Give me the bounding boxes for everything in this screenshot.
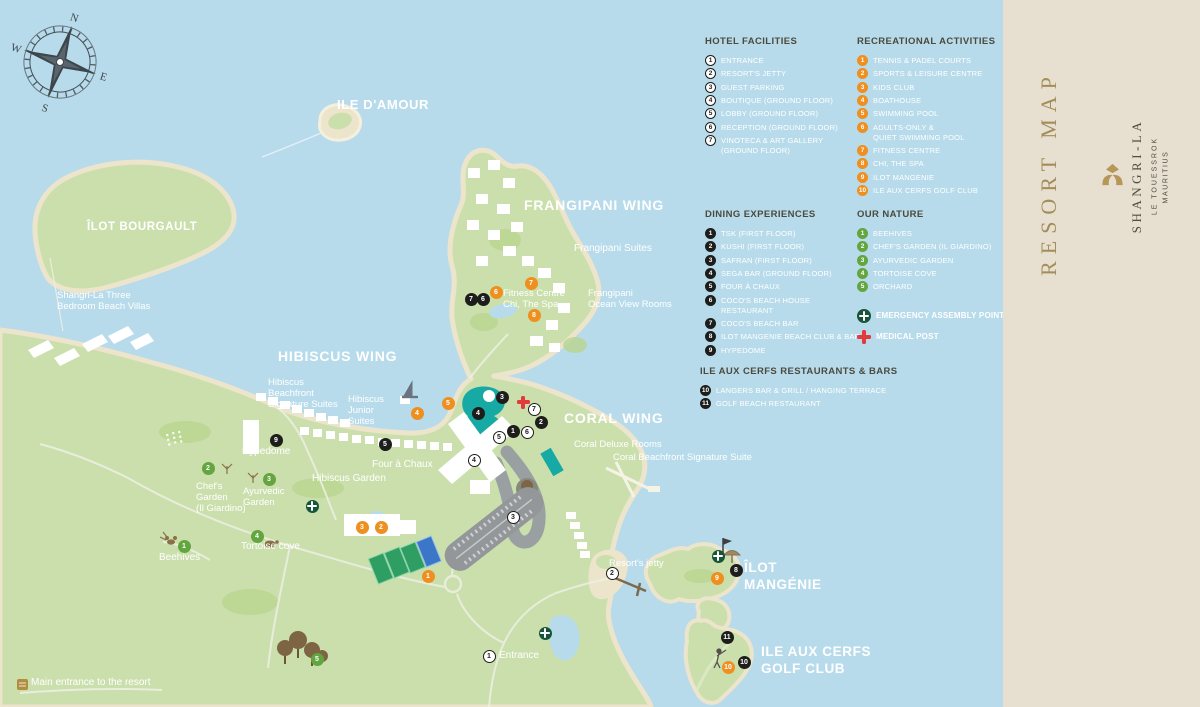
legend-item: 8ILOT MANGENIE BEACH CLUB & BAR (705, 331, 863, 342)
legend-item: 4TORTOISE COVE (857, 268, 1002, 279)
map-marker-r-2: 2 (375, 521, 388, 534)
legend-item: 5FOUR À CHAUX (705, 281, 863, 292)
legend-marker: 6 (705, 295, 716, 306)
legend-label: SPORTS & LEISURE CENTRE (873, 68, 983, 79)
legend-item: 10ILE AUX CERFS GOLF CLUB (857, 185, 1002, 196)
legend-marker: 3 (705, 255, 716, 266)
legend-item: 11GOLF BEACH RESTAURANT (700, 398, 960, 409)
legend-label: GOLF BEACH RESTAURANT (716, 398, 821, 409)
legend-label: ENTRANCE (721, 55, 764, 66)
legend-item: 3GUEST PARKING (705, 82, 855, 93)
legend-label: EMERGENCY ASSEMBLY POINT (876, 311, 1004, 322)
map-marker-m (517, 396, 530, 409)
legend-item-medical: MEDICAL POST (857, 330, 1007, 344)
legend-marker: 4 (857, 95, 868, 106)
legend-label: AYURVEDIC GARDEN (873, 255, 953, 266)
map-marker-r-8: 8 (528, 309, 541, 322)
map-marker-f-4: 4 (468, 454, 481, 467)
legend-label: SEGA BAR (GROUND FLOOR) (721, 268, 832, 279)
legend-item: 3KIDS CLUB (857, 82, 1002, 93)
legend-marker: 4 (705, 268, 716, 279)
map-marker-f-2: 2 (606, 567, 619, 580)
map-marker-f-6: 6 (521, 426, 534, 439)
legend-label: MEDICAL POST (876, 332, 939, 343)
legend-marker: 7 (857, 145, 868, 156)
legend-item: 1BEEHIVES (857, 228, 1002, 239)
map-marker-e (712, 550, 725, 563)
legend-item: 5ORCHARD (857, 281, 1002, 292)
legend-marker: 10 (700, 385, 711, 396)
legend-label: RESORT'S JETTY (721, 68, 786, 79)
map-marker-r-4: 4 (411, 407, 424, 420)
legend-label: FITNESS CENTRE (873, 145, 940, 156)
map-marker-r-5: 5 (442, 397, 455, 410)
map-marker-n-3: 3 (263, 473, 276, 486)
legend-label: ORCHARD (873, 281, 912, 292)
legend-title: HOTEL FACILITIES (705, 36, 855, 47)
legend-marker: 1 (705, 228, 716, 239)
resort-map-page: NESW ILE D'AMOURÎLOT BOURGAULTShangri-La… (0, 0, 1200, 707)
legend-marker: 5 (705, 281, 716, 292)
legend-label: SWIMMING POOL (873, 108, 939, 119)
legend-item: 2RESORT'S JETTY (705, 68, 855, 79)
legend-item: 5SWIMMING POOL (857, 108, 1002, 119)
medical-post-icon (857, 330, 871, 344)
map-marker-f-1: 1 (483, 650, 496, 663)
legend-marker: 6 (705, 122, 716, 133)
legend-marker: 9 (705, 345, 716, 356)
legend-item: 8CHI, THE SPA (857, 158, 1002, 169)
map-marker-e (539, 627, 552, 640)
legend-item: 2CHEF'S GARDEN (IL GIARDINO) (857, 241, 1002, 252)
legend-label: CHEF'S GARDEN (IL GIARDINO) (873, 241, 992, 252)
legend-marker: 2 (705, 68, 716, 79)
legend-label: CHI, THE SPA (873, 158, 924, 169)
map-marker-d-6: 6 (477, 293, 490, 306)
legend-item: 3SAFRAN (FIRST FLOOR) (705, 255, 863, 266)
map-marker-r-10: 10 (722, 661, 735, 674)
legend-label: TSK (FIRST FLOOR) (721, 228, 796, 239)
legend-nature: OUR NATURE 1BEEHIVES2CHEF'S GARDEN (IL G… (857, 209, 1002, 295)
legend-label: GUEST PARKING (721, 82, 785, 93)
legend-label: KIDS CLUB (873, 82, 914, 93)
map-marker-d-1: 1 (507, 425, 520, 438)
map-marker-n-4: 4 (251, 530, 264, 543)
legend-marker: 1 (857, 228, 868, 239)
legend-marker: 7 (705, 135, 716, 146)
legend-marker: 4 (705, 95, 716, 106)
legend-label: BEEHIVES (873, 228, 912, 239)
legend-item: 4BOUTIQUE (GROUND FLOOR) (705, 95, 855, 106)
legend-item: 1TENNIS & PADEL COURTS (857, 55, 1002, 66)
legend-label: LANGERS BAR & GRILL / HANGING TERRACE (716, 385, 886, 396)
legend-item: 2SPORTS & LEISURE CENTRE (857, 68, 1002, 79)
map-marker-n-2: 2 (202, 462, 215, 475)
legend-safety: EMERGENCY ASSEMBLY POINT MEDICAL POST (857, 309, 1007, 351)
legend-item: 4SEGA BAR (GROUND FLOOR) (705, 268, 863, 279)
map-marker-d-4: 4 (472, 407, 485, 420)
legend-item: 4BOATHOUSE (857, 95, 1002, 106)
legend-label: ILOT MANGENIE BEACH CLUB & BAR (721, 331, 860, 342)
legend-item: 6COCO'S BEACH HOUSE RESTAURANT (705, 295, 863, 316)
legend-label: COCO'S BEACH BAR (721, 318, 799, 329)
legend-label: ILE AUX CERFS GOLF CLUB (873, 185, 978, 196)
legend-title: ILE AUX CERFS RESTAURANTS & BARS (700, 366, 960, 377)
map-marker-r-7: 7 (525, 277, 538, 290)
legend-marker: 7 (705, 318, 716, 329)
legend-item: 5LOBBY (GROUND FLOOR) (705, 108, 855, 119)
legend-marker: 10 (857, 185, 868, 196)
legend-item: 1ENTRANCE (705, 55, 855, 66)
map-marker-r-3: 3 (356, 521, 369, 534)
shangri-la-logo (1100, 163, 1125, 187)
legend-marker: 3 (857, 255, 868, 266)
legend-title: RECREATIONAL ACTIVITIES (857, 36, 1002, 47)
legend-marker: 8 (705, 331, 716, 342)
map-marker-r-6: 6 (490, 286, 503, 299)
legend-item: 7COCO'S BEACH BAR (705, 318, 863, 329)
legend-marker: 8 (857, 158, 868, 169)
legend-label: LOBBY (GROUND FLOOR) (721, 108, 818, 119)
legend-item: 1TSK (FIRST FLOOR) (705, 228, 863, 239)
map-marker-d-10: 10 (738, 656, 751, 669)
map-marker-r-1: 1 (422, 570, 435, 583)
legend-label: HYPEDOME (721, 345, 766, 356)
map-marker-e (306, 500, 319, 513)
legend-marker: 5 (705, 108, 716, 119)
legend-label: VINOTECA & ART GALLERY (GROUND FLOOR) (721, 135, 823, 156)
brand-sub-mauritius: MAURITIUS (1163, 151, 1170, 204)
legend-item: 7VINOTECA & ART GALLERY (GROUND FLOOR) (705, 135, 855, 156)
legend-label: TENNIS & PADEL COURTS (873, 55, 971, 66)
map-marker-d-11: 11 (721, 631, 734, 644)
legend-item: 6ADULTS-ONLY & QUIET SWIMMING POOL (857, 122, 1002, 143)
emergency-assembly-icon (857, 309, 871, 323)
legend-ile-aux-cerfs: ILE AUX CERFS RESTAURANTS & BARS 10LANGE… (700, 366, 960, 412)
map-marker-d-3: 3 (496, 391, 509, 404)
legend-item-emergency: EMERGENCY ASSEMBLY POINT (857, 309, 1007, 323)
legend-marker: 3 (705, 82, 716, 93)
legend-item: 7FITNESS CENTRE (857, 145, 1002, 156)
legend-marker: 5 (857, 281, 868, 292)
legend-recreational: RECREATIONAL ACTIVITIES 1TENNIS & PADEL … (857, 36, 1002, 198)
legend-marker: 2 (705, 241, 716, 252)
legend-label: ADULTS-ONLY & QUIET SWIMMING POOL (873, 122, 965, 143)
legend-item: 9ILOT MANGENIE (857, 172, 1002, 183)
legend-marker: 1 (857, 55, 868, 66)
legend-marker: 2 (857, 68, 868, 79)
brand-name: SHANGRI-LA (1129, 119, 1145, 233)
legend-item: 10LANGERS BAR & GRILL / HANGING TERRACE (700, 385, 960, 396)
map-marker-d-2: 2 (535, 416, 548, 429)
legend-item: 2KUSHI (FIRST FLOOR) (705, 241, 863, 252)
legend-dining: DINING EXPERIENCES 1TSK (FIRST FLOOR)2KU… (705, 209, 863, 358)
legend-label: KUSHI (FIRST FLOOR) (721, 241, 804, 252)
legend-label: FOUR À CHAUX (721, 281, 780, 292)
legend-title: OUR NATURE (857, 209, 1002, 220)
legend-marker: 4 (857, 268, 868, 279)
legend-title: DINING EXPERIENCES (705, 209, 863, 220)
legend-item: 3AYURVEDIC GARDEN (857, 255, 1002, 266)
legend-label: COCO'S BEACH HOUSE RESTAURANT (721, 295, 863, 316)
legend-label: SAFRAN (FIRST FLOOR) (721, 255, 812, 266)
legend-marker: 3 (857, 82, 868, 93)
legend-item: 9HYPEDOME (705, 345, 863, 356)
map-marker-n-5: 5 (311, 653, 324, 666)
map-marker-n-1: 1 (178, 540, 191, 553)
legend-label: BOUTIQUE (GROUND FLOOR) (721, 95, 833, 106)
map-marker-d-7: 7 (465, 293, 478, 306)
legend-label: ILOT MANGENIE (873, 172, 934, 183)
legend-hotel-facilities: HOTEL FACILITIES 1ENTRANCE2RESORT'S JETT… (705, 36, 855, 158)
map-marker-d-9: 9 (270, 434, 283, 447)
map-marker-f-3: 3 (507, 511, 520, 524)
map-marker-d-8: 8 (730, 564, 743, 577)
legend-marker: 2 (857, 241, 868, 252)
brand-sub-touessrok: LE TOUESSROK (1152, 137, 1159, 215)
legend-marker: 6 (857, 122, 868, 133)
legend-item: 6RECEPTION (GROUND FLOOR) (705, 122, 855, 133)
resort-map-title: RESORT MAP (1036, 70, 1062, 276)
map-marker-f-5: 5 (493, 431, 506, 444)
legend-marker: 1 (705, 55, 716, 66)
legend-label: BOATHOUSE (873, 95, 921, 106)
legend-label: TORTOISE COVE (873, 268, 937, 279)
legend-label: RECEPTION (GROUND FLOOR) (721, 122, 838, 133)
map-marker-d-5: 5 (379, 438, 392, 451)
sidebar-panel (1003, 0, 1200, 707)
legend-marker: 11 (700, 398, 711, 409)
legend-marker: 9 (857, 172, 868, 183)
map-marker-r-9: 9 (711, 572, 724, 585)
legend-marker: 5 (857, 108, 868, 119)
